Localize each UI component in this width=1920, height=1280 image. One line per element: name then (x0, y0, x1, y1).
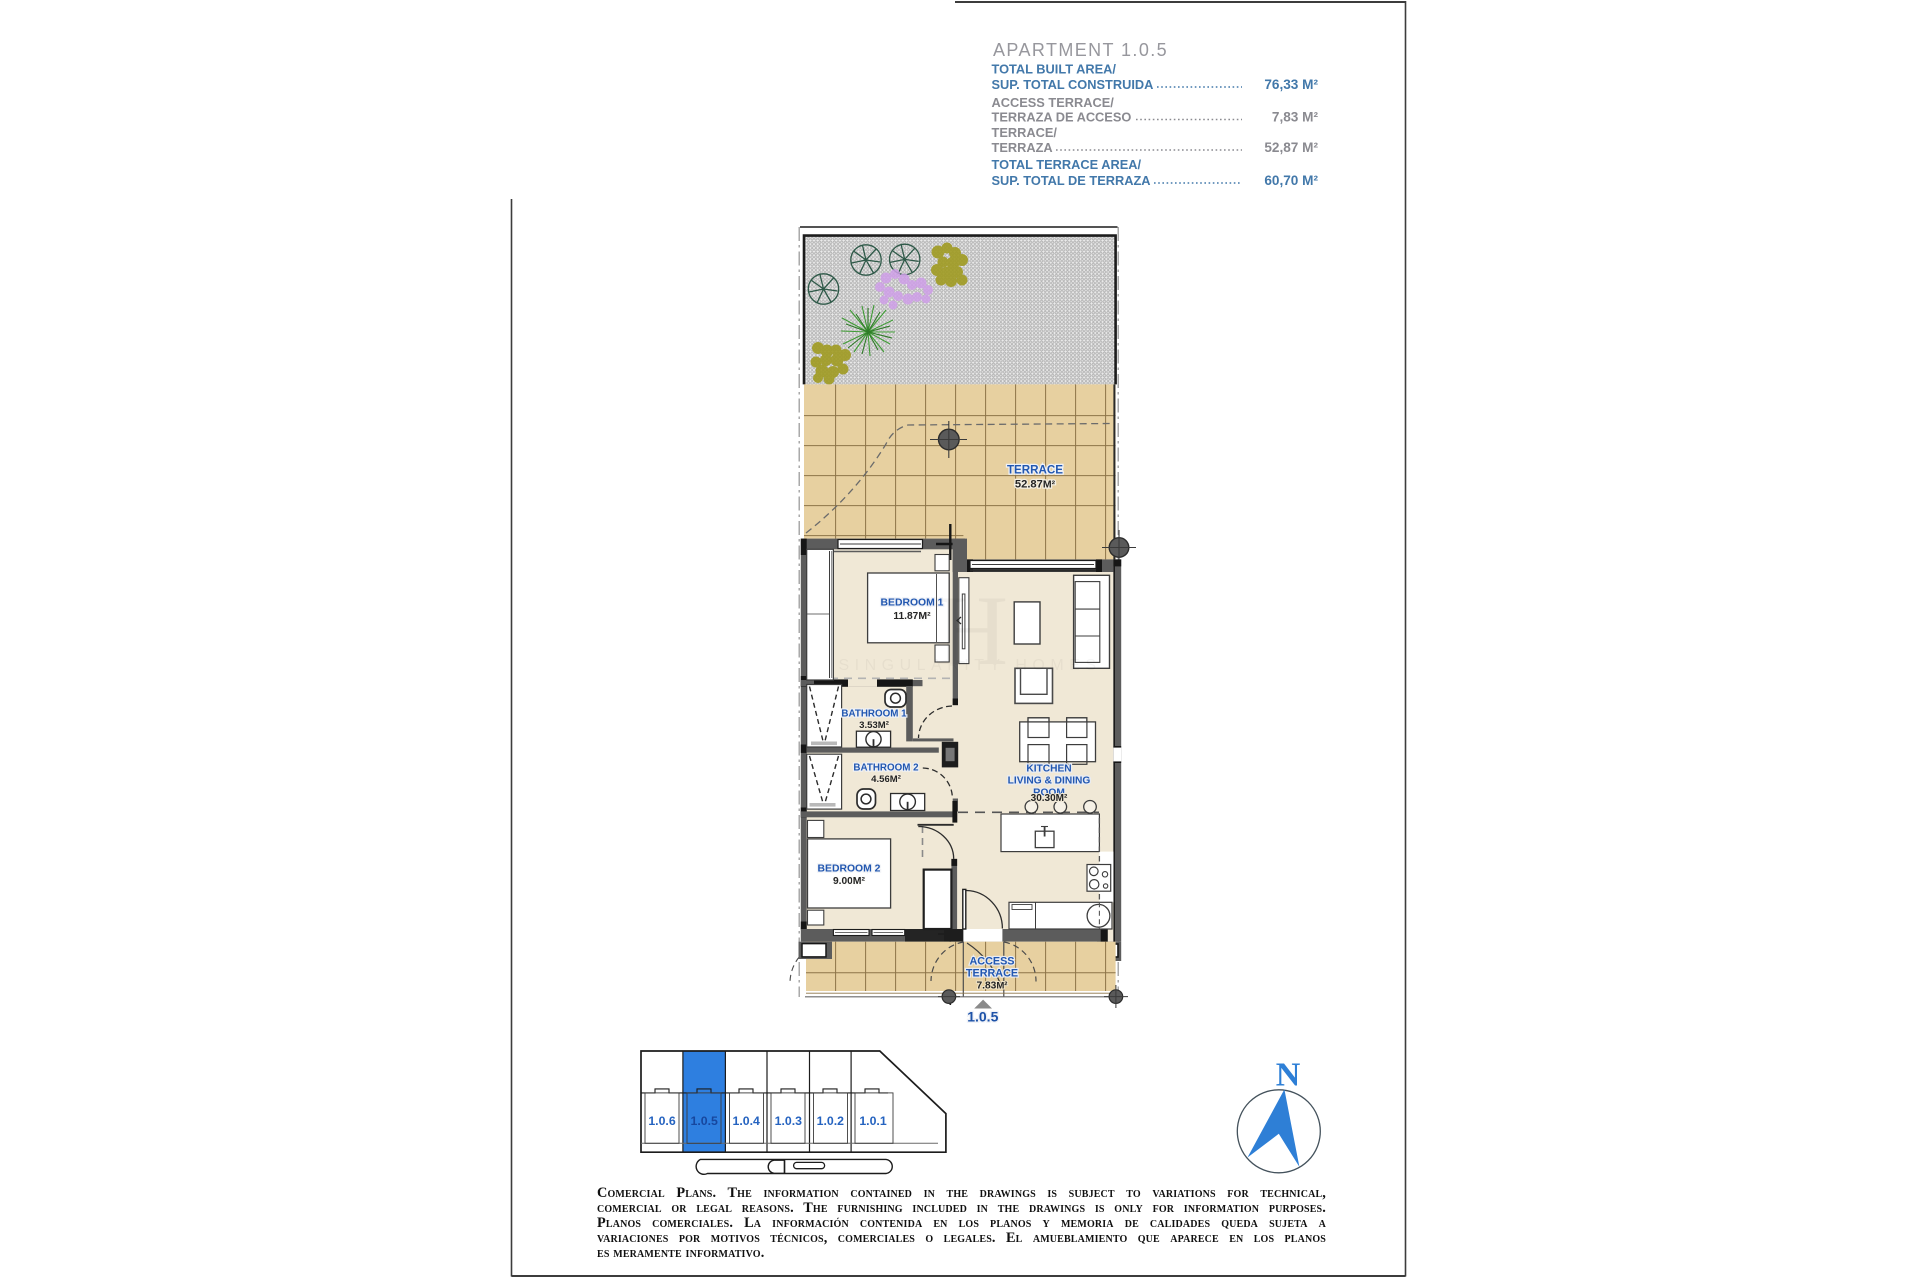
svg-text:SINGULARITY HOMES: SINGULARITY HOMES (838, 657, 1101, 674)
svg-text:30.30M²: 30.30M² (1031, 793, 1068, 804)
svg-text:7,83 M²: 7,83 M² (1272, 110, 1319, 125)
svg-text:1.0.3: 1.0.3 (775, 1114, 803, 1128)
svg-text:TERRACE/: TERRACE/ (992, 125, 1058, 140)
svg-text:60,70 M²: 60,70 M² (1264, 173, 1318, 188)
svg-text:TERRAZA: TERRAZA (992, 140, 1053, 155)
svg-text:1.0.6: 1.0.6 (648, 1114, 676, 1128)
svg-text:52.87M²: 52.87M² (1015, 479, 1056, 491)
svg-text:KITCHEN: KITCHEN (1026, 764, 1071, 775)
svg-text:BATHROOM 2: BATHROOM 2 (853, 763, 919, 774)
svg-text:7.83M²: 7.83M² (976, 981, 1007, 992)
svg-text:TERRACE: TERRACE (1007, 464, 1063, 477)
svg-text:LIVING & DINING: LIVING & DINING (1008, 776, 1091, 787)
svg-text:1.0.2: 1.0.2 (817, 1114, 845, 1128)
svg-text:4.56M²: 4.56M² (871, 774, 901, 785)
svg-text:76,33 M²: 76,33 M² (1264, 77, 1318, 92)
svg-text:ACCESS: ACCESS (970, 956, 1015, 968)
svg-text:9.00M²: 9.00M² (833, 875, 866, 887)
svg-text:TERRAZA DE ACCESO: TERRAZA DE ACCESO (992, 110, 1132, 125)
svg-text:SUP. TOTAL CONSTRUIDA: SUP. TOTAL CONSTRUIDA (992, 77, 1154, 92)
svg-text:52,87 M²: 52,87 M² (1264, 140, 1318, 155)
svg-text:1.0.5: 1.0.5 (967, 1009, 998, 1025)
svg-text:N: N (1276, 1057, 1301, 1094)
svg-text:APARTMENT 1.0.5: APARTMENT 1.0.5 (993, 40, 1168, 60)
svg-text:3.53M²: 3.53M² (859, 720, 889, 731)
svg-text:TERRACE: TERRACE (966, 968, 1018, 980)
svg-text:BEDROOM 2: BEDROOM 2 (818, 864, 881, 875)
svg-text:BATHROOM 1: BATHROOM 1 (841, 709, 907, 720)
svg-text:ACCESS TERRACE/: ACCESS TERRACE/ (992, 95, 1115, 110)
svg-text:TOTAL BUILT AREA/: TOTAL BUILT AREA/ (992, 62, 1117, 77)
svg-text:11.87M²: 11.87M² (893, 610, 931, 622)
svg-text:1.0.1: 1.0.1 (859, 1114, 887, 1128)
svg-text:1.0.5: 1.0.5 (691, 1114, 719, 1128)
svg-text:BEDROOM 1: BEDROOM 1 (881, 598, 944, 609)
svg-text:TOTAL TERRACE AREA/: TOTAL TERRACE AREA/ (992, 157, 1142, 172)
svg-text:1.0.4: 1.0.4 (733, 1114, 761, 1128)
svg-text:SUP. TOTAL DE TERRAZA: SUP. TOTAL DE TERRAZA (992, 173, 1151, 188)
